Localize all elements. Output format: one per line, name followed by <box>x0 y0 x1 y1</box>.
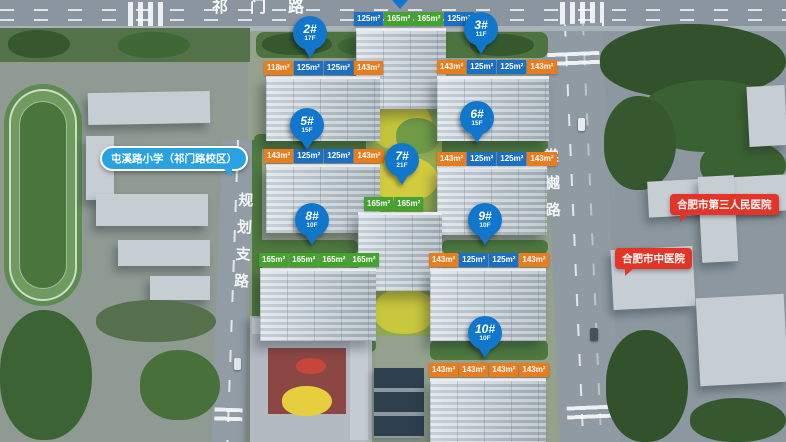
unit-area-label: 165m² <box>319 253 348 267</box>
site-plan-aerial-view: 祁门路 规划支路 棠樾路 <box>0 0 786 442</box>
hospital-building <box>698 175 738 263</box>
landmark-hospital-tcm-label[interactable]: 合肥市中医院 <box>615 248 692 269</box>
unit-area-label: 143m² <box>519 363 548 377</box>
unit-area-label: 125m² <box>467 152 496 166</box>
unit-labels-building-9: 143m² 125m² 125m² 143m² <box>429 253 549 267</box>
building-floors: 17F <box>304 36 315 43</box>
trees-patch <box>118 32 190 58</box>
lane-line <box>564 24 584 442</box>
pin-building-1-partial[interactable] <box>392 0 408 9</box>
unit-labels-building-5: 143m² 125m² 125m² 143m² <box>264 149 384 163</box>
unit-area-label: 165m² <box>259 253 288 267</box>
lane-line <box>582 23 602 442</box>
unit-labels-building-6: 143m² 125m² 125m² 143m² <box>437 152 557 166</box>
playground-yellow <box>282 386 332 416</box>
tower-10 <box>430 378 546 442</box>
unit-area-label: 125m² <box>489 253 518 267</box>
unit-area-label: 125m² <box>497 60 526 74</box>
unit-area-label: 125m² <box>459 253 488 267</box>
unit-area-label: 125m² <box>324 61 353 75</box>
landmark-hospital-third-text: 合肥市第三人民医院 <box>677 199 772 211</box>
pin-building-8[interactable]: 8# 10F <box>295 203 329 245</box>
unit-area-label: 165m² <box>349 253 378 267</box>
pin-building-9[interactable]: 9# 10F <box>468 203 502 245</box>
bubble-tail <box>223 168 232 177</box>
school-building <box>96 194 208 226</box>
field-infield <box>19 101 67 289</box>
trees-patch <box>0 310 92 440</box>
pin-building-3[interactable]: 3# 11F <box>464 12 498 54</box>
trees-patch <box>8 30 70 58</box>
building-floors: 10F <box>306 223 317 230</box>
unit-area-label: 143m² <box>527 60 556 74</box>
building-floors: 21F <box>396 163 407 170</box>
pin-tail <box>474 43 488 54</box>
pin-bubble: 7# 21F <box>385 143 419 177</box>
pin-bubble: 2# 17F <box>293 16 327 50</box>
building-floors: 10F <box>479 223 490 230</box>
bubble-tail <box>625 268 634 276</box>
school-building <box>118 240 210 266</box>
trees-patch <box>96 300 216 342</box>
lane-line <box>0 9 786 11</box>
pin-bubble: 3# 11F <box>464 12 498 46</box>
hospital-building <box>746 85 786 147</box>
pin-building-5[interactable]: 5# 15F <box>290 108 324 150</box>
solar-panel-array <box>374 368 424 438</box>
forest-patch <box>690 398 786 442</box>
unit-area-label: 143m² <box>459 363 488 377</box>
unit-area-label: 125m² <box>294 149 323 163</box>
unit-area-label: 165m² <box>384 12 413 26</box>
unit-area-label: 165m² <box>394 197 423 211</box>
bubble-tail <box>680 214 689 222</box>
landmark-hospital-third-label[interactable]: 合肥市第三人民医院 <box>670 194 779 215</box>
unit-area-label: 125m² <box>467 60 496 74</box>
pin-bubble: 6# 15F <box>460 101 494 135</box>
unit-area-label: 143m² <box>429 253 458 267</box>
pin-tail <box>470 132 484 143</box>
car <box>234 358 241 370</box>
pin-building-2[interactable]: 2# 17F <box>293 16 327 58</box>
playground-red <box>296 358 326 374</box>
pin-bubble: 10# 10F <box>468 316 502 350</box>
pin-tail <box>478 347 492 358</box>
unit-area-label: 143m² <box>354 149 383 163</box>
crosswalk <box>214 407 242 421</box>
pin-bubble: 9# 10F <box>468 203 502 237</box>
unit-area-label: 125m² <box>497 152 526 166</box>
building-floors: 15F <box>301 128 312 135</box>
unit-area-label: 143m² <box>437 152 466 166</box>
building-floors: 15F <box>471 121 482 128</box>
crosswalk <box>128 2 164 26</box>
tower-8 <box>260 268 376 341</box>
landmark-hospital-tcm-text: 合肥市中医院 <box>622 253 685 265</box>
trees-patch <box>140 350 220 420</box>
unit-area-label: 118m² <box>264 61 293 75</box>
unit-area-label: 143m² <box>437 60 466 74</box>
pin-building-10[interactable]: 10# 10F <box>468 316 502 358</box>
building-floors: 11F <box>476 32 487 39</box>
unit-area-label: 143m² <box>519 253 548 267</box>
unit-area-label: 125m² <box>294 61 323 75</box>
unit-area-label: 125m² <box>324 149 353 163</box>
pin-tail <box>395 174 409 185</box>
car <box>578 118 585 131</box>
unit-area-label: 143m² <box>489 363 518 377</box>
building-floors: 10F <box>479 336 490 343</box>
sports-field <box>4 84 82 306</box>
pin-building-7[interactable]: 7# 21F <box>385 143 419 185</box>
pin-tail <box>305 234 319 245</box>
unit-labels-building-8: 165m² 165m² 165m² 165m² <box>259 253 379 267</box>
unit-labels-building-1: 125m² 165m² 165m² 125m² <box>354 12 474 26</box>
unit-area-label: 143m² <box>354 61 383 75</box>
unit-area-label: 165m² <box>414 12 443 26</box>
unit-area-label: 143m² <box>527 152 556 166</box>
unit-area-label: 143m² <box>429 363 458 377</box>
unit-area-label: 165m² <box>289 253 318 267</box>
unit-labels-building-3: 143m² 125m² 125m² 143m² <box>437 60 557 74</box>
unit-labels-building-7: 165m² 165m² <box>364 197 423 211</box>
forest-patch <box>606 330 688 442</box>
pin-building-6[interactable]: 6# 15F <box>460 101 494 143</box>
yellow-trees-patch <box>374 288 436 334</box>
forest-patch <box>604 96 676 190</box>
unit-labels-building-10: 143m² 143m² 143m² 143m² <box>429 363 549 377</box>
school-building <box>150 276 210 300</box>
pin-bubble: 8# 10F <box>295 203 329 237</box>
unit-area-label: 165m² <box>364 197 393 211</box>
landmark-school-text: 屯溪路小学（祁门路校区） <box>111 153 237 165</box>
school-building <box>88 91 211 125</box>
hospital-building <box>696 294 786 386</box>
top-road-name: 祁门路 <box>212 0 326 17</box>
pin-tail <box>300 139 314 150</box>
running-track <box>9 89 77 301</box>
unit-area-label: 125m² <box>354 12 383 26</box>
unit-area-label: 143m² <box>264 149 293 163</box>
pin-bubble: 5# 15F <box>290 108 324 142</box>
pin-tail <box>303 47 317 58</box>
pin-tail <box>478 234 492 245</box>
landmark-school-label[interactable]: 屯溪路小学（祁门路校区） <box>100 146 248 171</box>
unit-labels-building-2: 118m² 125m² 125m² 143m² <box>264 61 383 75</box>
car <box>590 328 598 341</box>
